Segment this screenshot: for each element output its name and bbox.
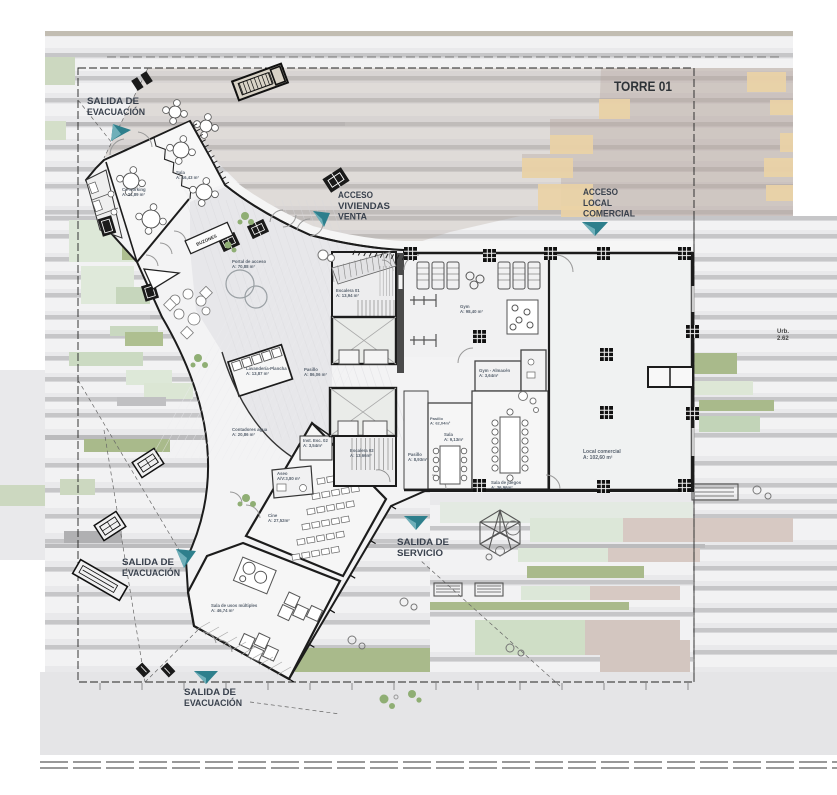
svg-text:2.62: 2.62 — [777, 336, 789, 342]
svg-text:EVACUACIÓN: EVACUACIÓN — [122, 567, 180, 578]
svg-text:VENTA: VENTA — [338, 212, 367, 222]
svg-text:SALIDA DE: SALIDA DE — [122, 557, 174, 567]
svg-text:A: 36,96m²: A: 36,96m² — [491, 485, 513, 490]
svg-text:A: 20,86 m²: A: 20,86 m² — [232, 432, 255, 437]
svg-text:A: 86,06 m²: A: 86,06 m² — [304, 372, 327, 377]
svg-text:A: 3,64m²: A: 3,64m² — [479, 373, 499, 378]
svg-text:VIVIENDAS: VIVIENDAS — [338, 201, 390, 211]
svg-text:SERVICIO: SERVICIO — [397, 548, 443, 558]
svg-text:A: 3,54m²: A: 3,54m² — [303, 443, 323, 448]
svg-text:Urb.: Urb. — [777, 329, 789, 335]
svg-text:A: 9,13m²: A: 9,13m² — [444, 437, 464, 442]
svg-text:A: 13,94 m²: A: 13,94 m² — [336, 293, 359, 298]
svg-text:A: 98,40 m²: A: 98,40 m² — [460, 309, 483, 314]
svg-text:EVACUACIÓN: EVACUACIÓN — [87, 106, 145, 117]
svg-text:LOCAL: LOCAL — [583, 198, 612, 208]
svg-text:ACCESO: ACCESO — [338, 190, 373, 200]
svg-text:A: 16,43 m²: A: 16,43 m² — [176, 175, 199, 180]
svg-text:A: 70,88 m²: A: 70,88 m² — [232, 264, 255, 269]
svg-text:A: 21,89 m²: A: 21,89 m² — [122, 192, 145, 197]
svg-text:A: 46,74 m²: A: 46,74 m² — [211, 608, 234, 613]
svg-text:A: 13,66m²: A: 13,66m² — [350, 453, 372, 458]
svg-text:A: 62,04m²: A: 62,04m² — [430, 421, 451, 426]
svg-text:SALIDA DE: SALIDA DE — [184, 687, 236, 697]
svg-text:A: 8,93m²: A: 8,93m² — [408, 457, 428, 462]
svg-text:EVACUACIÓN: EVACUACIÓN — [184, 697, 242, 708]
svg-text:COMERCIAL: COMERCIAL — [583, 209, 635, 219]
svg-text:A/V:3,80 m²: A/V:3,80 m² — [277, 476, 301, 481]
svg-text:A: 102,60 m²: A: 102,60 m² — [583, 455, 613, 461]
svg-text:SALIDA DE: SALIDA DE — [87, 96, 139, 106]
svg-text:A: 13,87 m²: A: 13,87 m² — [246, 371, 269, 376]
svg-text:TORRE 01: TORRE 01 — [614, 78, 672, 94]
svg-text:SALIDA DE: SALIDA DE — [397, 537, 449, 547]
svg-text:ACCESO: ACCESO — [583, 187, 618, 197]
svg-text:A: 27,52m²: A: 27,52m² — [268, 518, 290, 523]
